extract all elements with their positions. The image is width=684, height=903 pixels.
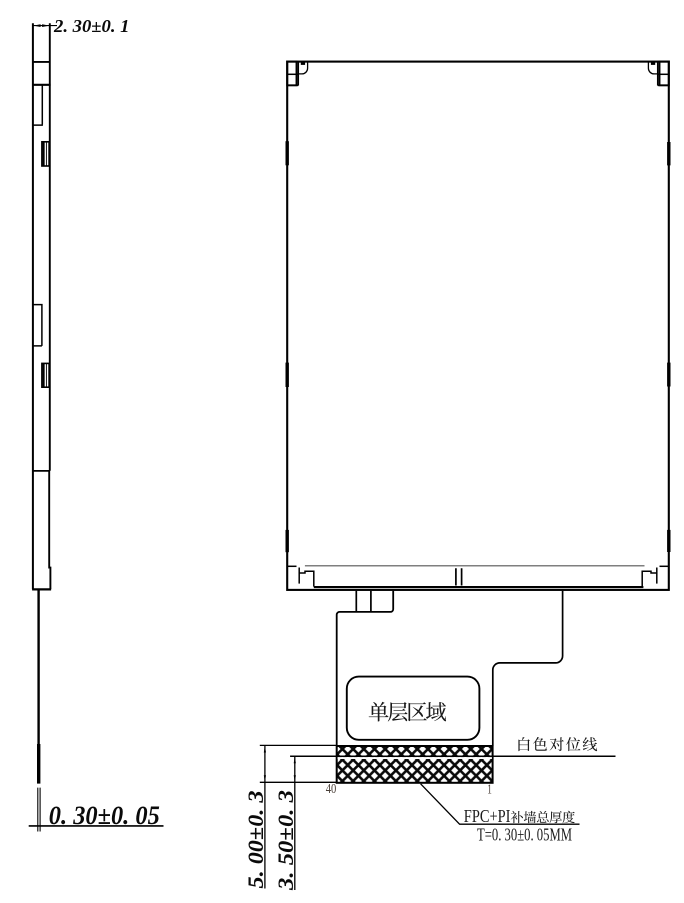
svg-text:T=0. 30±0. 05MM: T=0. 30±0. 05MM [477,824,572,844]
svg-text:5. 00±0. 3: 5. 00±0. 3 [243,791,268,889]
svg-text:0. 30±0. 05: 0. 30±0. 05 [49,801,160,830]
svg-text:1: 1 [487,781,492,796]
svg-text:2. 30±0. 1: 2. 30±0. 1 [53,16,130,36]
svg-text:3. 50±0. 3: 3. 50±0. 3 [273,790,298,891]
svg-text:40: 40 [326,781,337,796]
svg-text:FPC+PI: FPC+PI [464,806,511,826]
